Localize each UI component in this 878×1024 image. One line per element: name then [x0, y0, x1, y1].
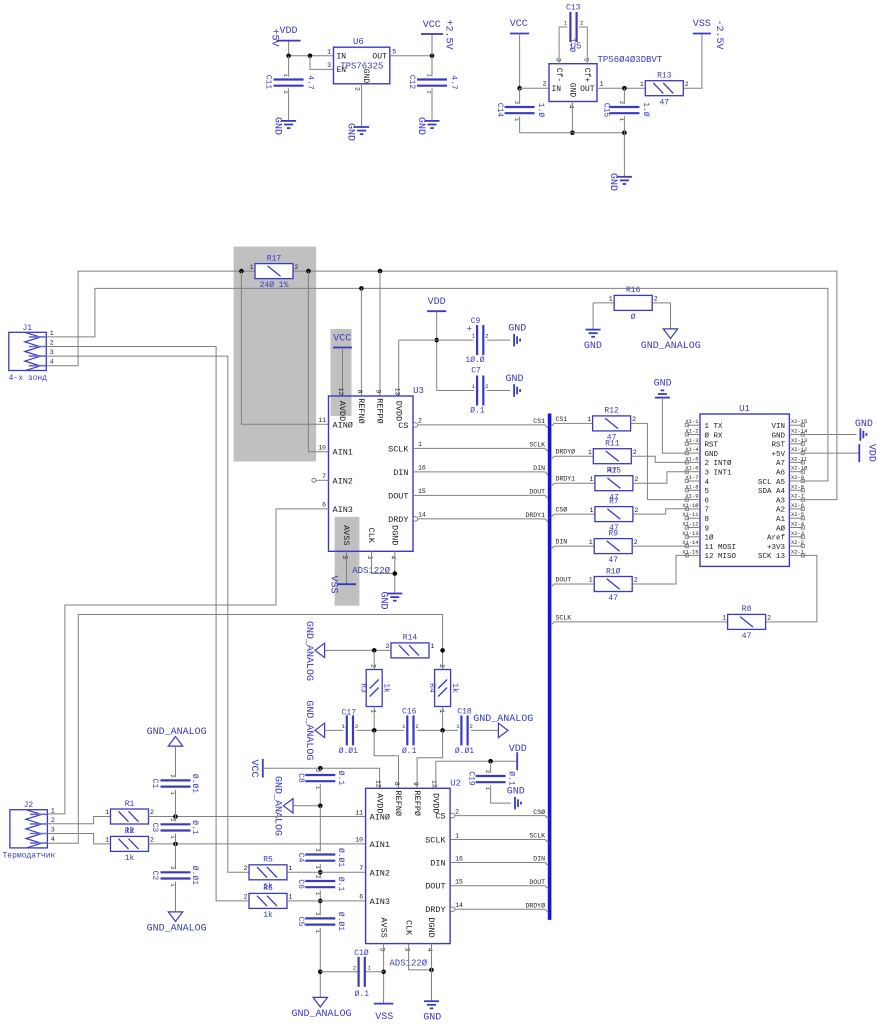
svg-text:DRDYØ: DRDYØ	[556, 448, 576, 456]
svg-text:X1-7: X1-7	[686, 475, 699, 481]
svg-text:2: 2	[685, 81, 689, 88]
svg-text:C2: C2	[150, 871, 159, 881]
svg-text:AVDD: AVDD	[374, 793, 384, 813]
svg-text:SCLK: SCLK	[425, 836, 446, 846]
svg-text:2: 2	[418, 418, 422, 425]
svg-text:SCLK: SCLK	[529, 833, 545, 840]
svg-text:VCC: VCC	[248, 759, 259, 777]
svg-text:4.7: 4.7	[306, 75, 315, 90]
svg-text:2 INTØ: 2 INTØ	[705, 459, 733, 468]
svg-text:GND: GND	[378, 591, 389, 609]
svg-text:12: 12	[337, 388, 344, 396]
svg-text:Cf-: Cf-	[554, 68, 563, 82]
svg-text:U6: U6	[353, 37, 364, 47]
svg-text:5: 5	[705, 488, 710, 496]
svg-text:2: 2	[370, 664, 377, 668]
svg-text:DVDD: DVDD	[431, 793, 441, 813]
svg-text:47: 47	[742, 632, 752, 641]
svg-text:1.Ø: 1.Ø	[641, 102, 650, 117]
svg-text:Ø.Ø1: Ø.Ø1	[190, 866, 199, 885]
svg-text:1.Ø: 1.Ø	[567, 38, 576, 53]
svg-text:+3V3: +3V3	[767, 544, 786, 552]
svg-text:1: 1	[370, 709, 377, 713]
svg-text:7: 7	[705, 507, 710, 515]
svg-text:J1: J1	[22, 324, 32, 333]
svg-text:1k: 1k	[263, 911, 273, 920]
svg-text:1.Ø: 1.Ø	[536, 103, 545, 118]
svg-text:Ø.1: Ø.1	[355, 990, 370, 999]
svg-text:-2.5V: -2.5V	[713, 19, 724, 49]
svg-text:DIN: DIN	[533, 465, 545, 472]
svg-text:2: 2	[282, 90, 289, 93]
svg-text:U2: U2	[450, 778, 461, 788]
svg-text:GND_ANALOG: GND_ANALOG	[641, 341, 701, 352]
svg-text:DIN: DIN	[393, 468, 408, 478]
svg-text:R4: R4	[427, 683, 436, 693]
svg-text:GND: GND	[855, 419, 873, 430]
svg-text:GND: GND	[508, 324, 526, 335]
svg-text:GND: GND	[415, 117, 426, 135]
svg-text:10: 10	[318, 445, 326, 452]
svg-text:DOUT: DOUT	[388, 491, 408, 501]
svg-text:X1-5: X1-5	[686, 456, 699, 462]
svg-text:5: 5	[341, 555, 348, 559]
svg-text:OUT: OUT	[372, 53, 387, 62]
svg-text:1: 1	[51, 807, 55, 814]
svg-text:DGND: DGND	[426, 917, 436, 937]
svg-text:2: 2	[354, 87, 361, 91]
svg-text:X1-11: X1-11	[682, 512, 698, 518]
svg-text:3: 3	[327, 62, 331, 69]
svg-text:VDD: VDD	[428, 297, 446, 308]
svg-text:Ø.1: Ø.1	[336, 877, 345, 892]
svg-text:R8: R8	[742, 605, 752, 614]
svg-text:1: 1	[587, 416, 591, 423]
svg-text:CLK: CLK	[403, 920, 413, 936]
svg-text:X2-1Ø: X2-1Ø	[791, 465, 808, 472]
svg-text:C12: C12	[407, 75, 416, 90]
svg-text:C4: C4	[296, 853, 305, 863]
svg-text:CSØ: CSØ	[556, 506, 568, 514]
svg-text:Ø.1: Ø.1	[336, 771, 345, 786]
svg-text:C1Ø: C1Ø	[354, 949, 369, 958]
svg-text:1Ø: 1Ø	[705, 534, 715, 543]
svg-text:4: 4	[390, 555, 397, 559]
svg-text:X2-1: X2-1	[791, 549, 804, 555]
svg-text:X1-8: X1-8	[686, 484, 699, 490]
svg-text:X1-4: X1-4	[686, 447, 699, 453]
svg-text:Ø.Ø1: Ø.Ø1	[336, 912, 345, 931]
svg-text:RST: RST	[771, 442, 785, 450]
svg-text:AIN2: AIN2	[333, 476, 353, 486]
svg-text:5: 5	[583, 58, 590, 62]
svg-text:Ø.Ø1: Ø.Ø1	[336, 848, 345, 867]
svg-text:3: 3	[403, 948, 410, 952]
svg-text:4: 4	[426, 948, 433, 952]
svg-text:X1-6: X1-6	[686, 466, 699, 472]
svg-text:Ø.1: Ø.1	[470, 406, 485, 415]
svg-text:1: 1	[289, 894, 293, 901]
svg-text:X1-12: X1-12	[682, 522, 698, 528]
svg-text:1: 1	[438, 709, 445, 713]
svg-text:AINØ: AINØ	[370, 813, 390, 823]
svg-text:R17: R17	[267, 254, 282, 263]
svg-text:GND: GND	[771, 432, 785, 440]
svg-text:1: 1	[289, 865, 293, 872]
svg-text:2: 2	[543, 81, 547, 88]
svg-text:7: 7	[322, 473, 326, 480]
svg-text:8: 8	[393, 782, 400, 786]
svg-text:12: 12	[374, 780, 381, 788]
svg-text:8: 8	[356, 390, 363, 394]
svg-text:R1Ø: R1Ø	[606, 567, 621, 576]
svg-text:GND_ANALOG: GND_ANALOG	[147, 727, 207, 738]
svg-text:9: 9	[705, 525, 710, 533]
svg-text:+5V: +5V	[269, 28, 280, 46]
svg-text:2: 2	[634, 577, 638, 584]
svg-text:SCK 13: SCK 13	[758, 553, 786, 561]
svg-text:U3: U3	[413, 386, 424, 396]
svg-text:Ø.Ø1: Ø.Ø1	[339, 747, 358, 756]
svg-text:AIN1: AIN1	[370, 840, 390, 850]
svg-text:47: 47	[608, 556, 618, 565]
svg-text:5: 5	[378, 948, 385, 952]
svg-text:2: 2	[767, 615, 771, 622]
svg-text:2: 2	[386, 643, 390, 650]
svg-text:CSØ: CSØ	[533, 808, 545, 816]
svg-text:DVDD: DVDD	[393, 401, 403, 421]
svg-text:1Ø.Ø: 1Ø.Ø	[465, 356, 484, 365]
svg-text:X2-13: X2-13	[791, 438, 807, 444]
svg-text:A3: A3	[776, 497, 786, 505]
svg-text:1: 1	[455, 832, 459, 839]
svg-text:+2.5V: +2.5V	[443, 19, 454, 49]
svg-text:2: 2	[353, 964, 356, 971]
svg-text:C11: C11	[264, 75, 273, 90]
svg-text:Aref: Aref	[767, 535, 786, 543]
svg-text:+5V: +5V	[771, 451, 785, 459]
svg-text:R2: R2	[125, 827, 135, 836]
svg-text:11: 11	[355, 809, 363, 816]
svg-text:X1-2: X1-2	[686, 429, 699, 435]
svg-text:VIN: VIN	[771, 423, 785, 431]
svg-text:5: 5	[392, 49, 396, 56]
svg-text:11 MOSI: 11 MOSI	[705, 544, 737, 552]
svg-text:OUT: OUT	[580, 85, 595, 94]
svg-text:1: 1	[640, 81, 644, 88]
svg-text:C5: C5	[296, 917, 305, 927]
svg-text:R16: R16	[626, 286, 641, 295]
svg-text:R12: R12	[604, 407, 619, 416]
svg-text:7: 7	[359, 865, 363, 872]
svg-text:GND_ANALOG: GND_ANALOG	[291, 1009, 351, 1020]
svg-text:R15: R15	[607, 467, 622, 476]
svg-text:C8: C8	[296, 773, 305, 783]
svg-text:47: 47	[608, 594, 618, 603]
svg-text:6: 6	[705, 497, 710, 505]
svg-text:GND: GND	[505, 374, 523, 385]
svg-text:1: 1	[589, 476, 593, 483]
svg-text:GND_ANALOG: GND_ANALOG	[473, 714, 533, 725]
svg-text:GND: GND	[607, 173, 618, 191]
svg-text:DGND: DGND	[390, 525, 400, 545]
svg-text:1: 1	[105, 837, 109, 844]
svg-text:R3: R3	[359, 683, 368, 693]
svg-text:+: +	[467, 325, 472, 335]
svg-text:X2-9: X2-9	[791, 475, 804, 481]
svg-text:C9: C9	[471, 317, 481, 326]
svg-text:Ø.Ø1: Ø.Ø1	[190, 774, 199, 793]
svg-text:2: 2	[51, 817, 55, 824]
svg-text:REFPØ: REFPØ	[375, 398, 385, 424]
svg-text:C13: C13	[566, 3, 581, 12]
svg-text:A2: A2	[776, 507, 785, 515]
svg-text:VCC: VCC	[510, 19, 528, 30]
svg-text:REFPØ: REFPØ	[412, 791, 422, 817]
svg-text:Ø.1: Ø.1	[402, 747, 417, 756]
svg-text:2: 2	[355, 723, 358, 730]
svg-text:X1-14: X1-14	[682, 540, 698, 546]
svg-text:AIN1: AIN1	[333, 448, 353, 458]
svg-text:X1-1Ø: X1-1Ø	[682, 502, 699, 509]
svg-text:Ø RX: Ø RX	[705, 431, 724, 440]
svg-text:3: 3	[366, 555, 373, 559]
svg-text:2: 2	[634, 539, 638, 546]
svg-text:C6: C6	[296, 879, 305, 889]
svg-text:2: 2	[513, 101, 520, 104]
svg-text:DOUT: DOUT	[529, 489, 545, 496]
svg-text:DRDY: DRDY	[388, 515, 408, 525]
svg-text:DIN: DIN	[533, 856, 545, 863]
svg-text:1: 1	[431, 643, 435, 650]
svg-text:U1: U1	[739, 404, 750, 414]
svg-text:2: 2	[314, 875, 321, 878]
svg-text:CS: CS	[435, 812, 445, 822]
svg-text:X2-8: X2-8	[791, 484, 804, 490]
svg-text:GND: GND	[507, 787, 525, 798]
svg-text:4: 4	[705, 479, 710, 487]
svg-text:GND: GND	[272, 117, 283, 135]
svg-text:DIN: DIN	[556, 539, 568, 546]
svg-text:R7: R7	[609, 497, 619, 506]
svg-text:4: 4	[568, 105, 575, 109]
svg-text:AVSS: AVSS	[341, 525, 351, 545]
svg-text:2: 2	[580, 20, 583, 27]
svg-text:TPS6Ø4Ø3DBVT: TPS6Ø4Ø3DBVT	[598, 55, 663, 65]
svg-text:2: 2	[455, 808, 459, 815]
svg-text:1: 1	[418, 441, 422, 448]
svg-text:1: 1	[589, 577, 593, 584]
svg-text:2: 2	[314, 912, 321, 915]
svg-text:J2: J2	[24, 801, 34, 810]
svg-text:16: 16	[455, 855, 463, 862]
svg-text:X2-4: X2-4	[791, 522, 804, 528]
svg-text:15: 15	[418, 488, 426, 495]
svg-text:REFNØ: REFNØ	[393, 791, 403, 817]
svg-text:EN: EN	[337, 66, 347, 75]
svg-text:GND_ANALOG: GND_ANALOG	[303, 621, 314, 681]
svg-text:CLK: CLK	[366, 528, 376, 544]
svg-text:R9: R9	[608, 529, 618, 538]
svg-text:GND_ANALOG: GND_ANALOG	[303, 700, 314, 760]
svg-text:8: 8	[705, 516, 710, 524]
svg-text:1: 1	[327, 49, 331, 56]
svg-text:AVDD: AVDD	[337, 401, 347, 421]
svg-text:13: 13	[431, 780, 438, 788]
svg-text:6: 6	[322, 502, 326, 509]
svg-text:2: 2	[169, 774, 176, 777]
svg-text:DOUT: DOUT	[425, 882, 445, 892]
svg-text:C14: C14	[495, 103, 504, 118]
svg-text:VCC: VCC	[333, 334, 351, 345]
svg-text:AVSS: AVSS	[378, 917, 388, 937]
svg-text:SDA A4: SDA A4	[758, 488, 786, 496]
svg-text:DIN: DIN	[430, 859, 445, 869]
svg-text:SCLK: SCLK	[556, 614, 572, 621]
svg-text:2: 2	[314, 848, 321, 851]
svg-text:R14: R14	[403, 634, 418, 643]
svg-text:SCL A5: SCL A5	[758, 479, 786, 487]
svg-text:1: 1	[588, 449, 592, 456]
svg-text:2: 2	[50, 340, 54, 347]
svg-text:10: 10	[355, 837, 363, 844]
svg-text:Ø.1: Ø.1	[507, 771, 516, 786]
svg-text:AIN3: AIN3	[370, 897, 390, 907]
svg-text:2: 2	[654, 296, 658, 303]
svg-text:14: 14	[418, 512, 426, 519]
svg-text:1: 1	[589, 539, 593, 546]
svg-text:14: 14	[455, 902, 463, 909]
svg-text:3: 3	[50, 349, 54, 356]
svg-text:AØ: AØ	[776, 524, 786, 533]
svg-text:SCLK: SCLK	[388, 444, 409, 454]
svg-text:1: 1	[589, 507, 593, 514]
svg-text:A7: A7	[776, 460, 785, 468]
svg-text:1: 1	[50, 330, 54, 337]
svg-text:VSS: VSS	[375, 1012, 393, 1023]
svg-text:1: 1	[722, 615, 726, 622]
svg-text:GND_ANALOG: GND_ANALOG	[272, 776, 283, 836]
svg-text:CS1: CS1	[556, 416, 568, 423]
svg-text:IN: IN	[337, 53, 347, 62]
svg-text:47: 47	[659, 98, 669, 107]
svg-text:2: 2	[415, 723, 418, 730]
svg-text:12 MISO: 12 MISO	[705, 553, 737, 561]
svg-text:GND: GND	[345, 123, 356, 141]
svg-text:1 TX: 1 TX	[705, 423, 724, 431]
svg-text:2: 2	[169, 866, 176, 869]
svg-text:1k: 1k	[382, 683, 391, 693]
svg-text:4-х зонд: 4-х зонд	[9, 374, 48, 383]
svg-text:VDD: VDD	[865, 444, 876, 462]
svg-text:2: 2	[314, 769, 321, 772]
svg-text:R5: R5	[263, 856, 273, 865]
svg-text:DOUT: DOUT	[556, 576, 572, 583]
svg-text:VSS: VSS	[693, 19, 711, 30]
svg-text:VCC: VCC	[423, 20, 441, 31]
svg-text:X2-15: X2-15	[791, 419, 807, 425]
svg-text:SCLK: SCLK	[529, 442, 545, 449]
svg-text:DRDY1: DRDY1	[525, 512, 545, 519]
svg-text:2: 2	[485, 333, 488, 340]
svg-text:2: 2	[169, 818, 176, 821]
svg-text:AINØ: AINØ	[333, 420, 353, 430]
svg-text:X2-2: X2-2	[791, 540, 804, 546]
svg-text:2: 2	[618, 101, 625, 104]
svg-text:RST: RST	[705, 442, 719, 450]
svg-text:C16: C16	[402, 708, 417, 717]
svg-text:GND: GND	[423, 1013, 441, 1024]
svg-text:GND: GND	[567, 83, 576, 98]
svg-text:X1-1: X1-1	[686, 419, 699, 425]
svg-text:X2-12: X2-12	[791, 447, 807, 453]
svg-text:2: 2	[634, 476, 638, 483]
svg-text:2: 2	[438, 664, 445, 668]
svg-text:X1-9: X1-9	[686, 494, 699, 500]
svg-text:1: 1	[250, 264, 254, 271]
svg-text:X2-6: X2-6	[791, 503, 804, 509]
svg-text:REFNØ: REFNØ	[356, 398, 366, 424]
svg-text:VDD: VDD	[509, 744, 527, 755]
svg-text:1: 1	[105, 809, 109, 816]
svg-text:15: 15	[455, 879, 463, 886]
svg-text:GND: GND	[584, 341, 602, 352]
svg-text:11: 11	[318, 417, 326, 424]
svg-text:A6: A6	[776, 470, 786, 478]
svg-text:2: 2	[244, 865, 248, 872]
svg-text:X1-15: X1-15	[682, 549, 698, 555]
svg-text:2: 2	[484, 770, 491, 773]
svg-text:A1: A1	[776, 516, 786, 524]
svg-text:X2-7: X2-7	[791, 494, 804, 500]
svg-text:13: 13	[393, 388, 400, 396]
svg-text:GND: GND	[361, 69, 370, 84]
svg-text:2: 2	[633, 449, 637, 456]
svg-text:2: 2	[295, 264, 299, 271]
svg-text:GND: GND	[654, 378, 672, 389]
svg-text:6: 6	[359, 894, 363, 901]
svg-text:DOUT: DOUT	[529, 879, 545, 886]
svg-text:4.7: 4.7	[449, 75, 458, 90]
svg-text:R13: R13	[657, 72, 672, 81]
svg-text:C19: C19	[467, 771, 476, 786]
svg-text:R6: R6	[263, 884, 273, 893]
svg-text:R11: R11	[605, 440, 620, 449]
svg-text:X2-5: X2-5	[791, 512, 804, 518]
svg-text:1k: 1k	[450, 683, 459, 693]
svg-text:4: 4	[51, 836, 55, 843]
svg-text:C15: C15	[602, 103, 611, 118]
svg-text:AIN2: AIN2	[370, 868, 390, 878]
svg-text:2: 2	[244, 894, 248, 901]
svg-text:2: 2	[150, 837, 154, 844]
svg-text:X2-11: X2-11	[791, 456, 807, 462]
svg-text:X2-14: X2-14	[791, 429, 807, 435]
svg-text:CS: CS	[398, 421, 408, 431]
svg-text:3: 3	[51, 827, 55, 834]
svg-text:2: 2	[426, 90, 433, 93]
svg-text:Ø.1: Ø.1	[190, 820, 199, 835]
svg-text:9: 9	[412, 782, 419, 786]
svg-text:IN: IN	[552, 85, 562, 94]
svg-text:2: 2	[485, 383, 488, 390]
svg-text:16: 16	[418, 465, 426, 472]
svg-text:4: 4	[50, 359, 54, 366]
svg-text:DRDYØ: DRDYØ	[525, 901, 545, 909]
svg-text:VSS: VSS	[328, 575, 339, 593]
svg-text:1k: 1k	[125, 854, 135, 863]
svg-text:C17: C17	[342, 709, 357, 718]
